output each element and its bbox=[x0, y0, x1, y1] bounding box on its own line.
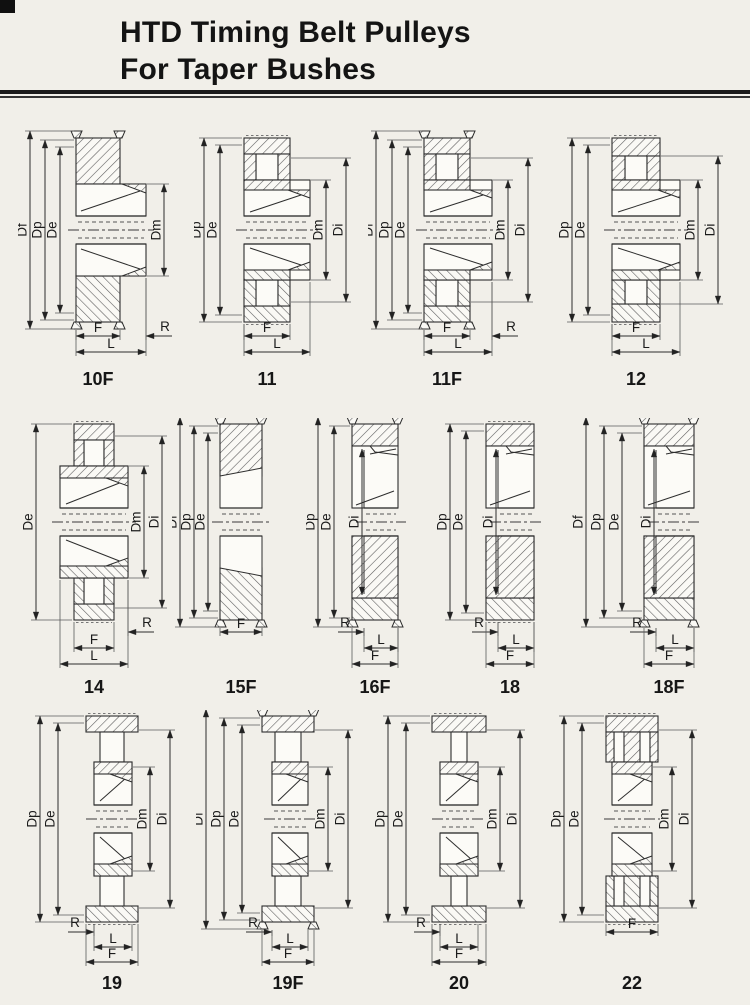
svg-text:De: De bbox=[607, 513, 622, 530]
figure-caption-14: 14 bbox=[16, 677, 172, 698]
svg-text:R: R bbox=[474, 615, 484, 630]
svg-text:Dp: Dp bbox=[373, 810, 388, 827]
svg-text:Dp: Dp bbox=[557, 221, 572, 238]
pulley-drawing-22: DpDeDmDiF bbox=[550, 710, 718, 971]
svg-text:L: L bbox=[642, 336, 650, 351]
pulley-drawing-18F: DfDpDeDiRLF bbox=[572, 418, 750, 675]
svg-text:Dm: Dm bbox=[129, 512, 144, 533]
figure-caption-18: 18 bbox=[436, 677, 584, 698]
svg-text:Di: Di bbox=[639, 516, 654, 529]
svg-text:L: L bbox=[512, 632, 520, 647]
svg-text:Df: Df bbox=[18, 223, 30, 237]
svg-text:Dm: Dm bbox=[311, 220, 326, 241]
figure-18F: DfDpDeDiRLF 18F bbox=[572, 418, 750, 698]
svg-text:De: De bbox=[567, 810, 582, 827]
svg-text:L: L bbox=[671, 632, 679, 647]
svg-text:Di: Di bbox=[677, 813, 692, 826]
svg-text:F: F bbox=[90, 632, 98, 647]
svg-text:F: F bbox=[506, 648, 514, 663]
pulley-cross-section: DpDeDmDiFL bbox=[194, 130, 364, 362]
title-rule bbox=[0, 90, 750, 98]
svg-text:Dm: Dm bbox=[657, 809, 672, 830]
svg-text:L: L bbox=[273, 336, 281, 351]
svg-text:R: R bbox=[70, 915, 80, 930]
svg-text:F: F bbox=[455, 946, 463, 961]
svg-text:Dp: Dp bbox=[209, 810, 224, 827]
svg-text:F: F bbox=[263, 320, 271, 335]
figure-caption-11: 11 bbox=[194, 369, 340, 390]
figure-caption-19F: 19F bbox=[196, 973, 380, 994]
svg-text:Dm: Dm bbox=[313, 809, 328, 830]
pulley-cross-section: DfDpDeDmDiRLF bbox=[196, 710, 366, 966]
svg-text:F: F bbox=[371, 648, 379, 663]
svg-text:Di: Di bbox=[481, 516, 496, 529]
catalog-page: HTD Timing Belt Pulleys For Taper Bushes… bbox=[0, 0, 750, 1005]
pulley-drawing-19: DpDeDmDiRLF bbox=[24, 710, 200, 971]
pulley-cross-section: DfDpDeDiRLF bbox=[572, 418, 744, 670]
svg-text:F: F bbox=[284, 946, 292, 961]
svg-text:L: L bbox=[107, 336, 115, 351]
figure-14: DeDmDiRFL 14 bbox=[16, 418, 174, 698]
svg-text:De: De bbox=[391, 810, 406, 827]
figure-20: DpDeDmDiRLF 20 bbox=[372, 710, 546, 994]
svg-text:Dp: Dp bbox=[550, 810, 564, 827]
figure-caption-11F: 11F bbox=[368, 369, 526, 390]
figure-caption-22: 22 bbox=[550, 973, 714, 994]
svg-text:Di: Di bbox=[347, 516, 362, 529]
pulley-cross-section: DpDeDiRLF bbox=[436, 418, 566, 670]
pulley-drawing-12: DpDeDmDiFL bbox=[552, 130, 742, 367]
pulley-drawing-16F: DpDeDiRLF bbox=[306, 418, 444, 675]
page-title-line1: HTD Timing Belt Pulleys bbox=[120, 16, 471, 49]
figure-16F: DpDeDiRLF 16F bbox=[306, 418, 444, 698]
svg-text:R: R bbox=[632, 615, 642, 630]
svg-text:F: F bbox=[94, 320, 102, 335]
figure-caption-10F: 10F bbox=[18, 369, 178, 390]
pulley-cross-section: DpDeDmDiFL bbox=[552, 130, 742, 362]
svg-text:Di: Di bbox=[505, 813, 520, 826]
svg-text:L: L bbox=[454, 336, 462, 351]
svg-text:Df: Df bbox=[196, 812, 206, 826]
page-title-line2: For Taper Bushes bbox=[120, 53, 376, 86]
svg-text:Dm: Dm bbox=[493, 220, 508, 241]
svg-text:De: De bbox=[227, 810, 242, 827]
pulley-drawing-18: DpDeDiRLF bbox=[436, 418, 584, 675]
svg-text:Dp: Dp bbox=[30, 221, 45, 238]
svg-text:L: L bbox=[455, 931, 463, 946]
figure-caption-18F: 18F bbox=[572, 677, 750, 698]
pulley-cross-section: DeDmDiRFL bbox=[16, 418, 174, 670]
figure-12: DpDeDmDiFL 12 bbox=[552, 130, 742, 390]
svg-text:Dp: Dp bbox=[436, 513, 450, 530]
svg-text:F: F bbox=[443, 320, 451, 335]
svg-text:Dp: Dp bbox=[194, 221, 204, 238]
svg-text:F: F bbox=[628, 916, 636, 931]
svg-text:F: F bbox=[108, 946, 116, 961]
figure-caption-12: 12 bbox=[552, 369, 720, 390]
figure-15F: DfDpDeF 15F bbox=[172, 418, 310, 698]
pulley-cross-section: DpDeDmDiRLF bbox=[24, 710, 186, 966]
svg-text:Di: Di bbox=[147, 516, 162, 529]
svg-text:De: De bbox=[21, 513, 36, 530]
svg-text:R: R bbox=[506, 319, 516, 334]
svg-text:De: De bbox=[451, 513, 466, 530]
figure-22: DpDeDmDiF 22 bbox=[550, 710, 718, 994]
page-title: HTD Timing Belt Pulleys For Taper Bushes bbox=[120, 14, 471, 88]
figure-10F: DfDpDeDmFRL 10F bbox=[18, 130, 190, 390]
svg-text:De: De bbox=[45, 221, 60, 238]
pulley-cross-section: DfDpDeDmFRL bbox=[18, 130, 190, 362]
figure-caption-19: 19 bbox=[24, 973, 200, 994]
figure-11: DpDeDmDiFL 11 bbox=[194, 130, 364, 390]
svg-text:De: De bbox=[205, 221, 220, 238]
svg-text:R: R bbox=[248, 915, 258, 930]
pulley-drawing-11: DpDeDmDiFL bbox=[194, 130, 364, 367]
svg-text:Dp: Dp bbox=[377, 221, 392, 238]
figure-19: DpDeDmDiRLF 19 bbox=[24, 710, 200, 994]
svg-text:Dm: Dm bbox=[149, 220, 164, 241]
pulley-drawing-10F: DfDpDeDmFRL bbox=[18, 130, 190, 367]
svg-text:Df: Df bbox=[368, 223, 376, 237]
svg-text:Df: Df bbox=[572, 515, 586, 529]
svg-text:Dm: Dm bbox=[683, 220, 698, 241]
figure-caption-15F: 15F bbox=[172, 677, 310, 698]
svg-text:L: L bbox=[109, 931, 117, 946]
svg-text:L: L bbox=[377, 632, 385, 647]
svg-text:R: R bbox=[340, 615, 350, 630]
scan-corner-mark bbox=[0, 0, 15, 13]
svg-text:Dm: Dm bbox=[135, 809, 150, 830]
svg-text:R: R bbox=[142, 615, 152, 630]
svg-text:Dp: Dp bbox=[589, 513, 604, 530]
figure-11F: DfDpDeDmDiFRL 11F bbox=[368, 130, 548, 390]
svg-text:R: R bbox=[160, 319, 170, 334]
pulley-cross-section: DpDeDmDiF bbox=[550, 710, 718, 966]
pulley-cross-section: DpDeDiRLF bbox=[306, 418, 434, 670]
svg-text:Di: Di bbox=[155, 813, 170, 826]
pulley-drawing-19F: DfDpDeDmDiRLF bbox=[196, 710, 380, 971]
svg-text:De: De bbox=[393, 221, 408, 238]
svg-text:R: R bbox=[416, 915, 426, 930]
figure-19F: DfDpDeDmDiRLF 19F bbox=[196, 710, 380, 994]
svg-text:Di: Di bbox=[333, 813, 348, 826]
svg-text:De: De bbox=[193, 513, 208, 530]
svg-text:Di: Di bbox=[703, 224, 718, 237]
pulley-drawing-14: DeDmDiRFL bbox=[16, 418, 174, 675]
svg-text:Di: Di bbox=[331, 224, 346, 237]
svg-text:De: De bbox=[43, 810, 58, 827]
pulley-cross-section: DfDpDeDmDiFRL bbox=[368, 130, 548, 362]
figure-caption-20: 20 bbox=[372, 973, 546, 994]
pulley-drawing-20: DpDeDmDiRLF bbox=[372, 710, 546, 971]
svg-text:Dm: Dm bbox=[485, 809, 500, 830]
pulley-cross-section: DfDpDeF bbox=[172, 418, 302, 670]
svg-text:F: F bbox=[237, 616, 245, 631]
title-rule-thin bbox=[0, 96, 750, 98]
svg-text:Dp: Dp bbox=[306, 513, 318, 530]
pulley-drawing-11F: DfDpDeDmDiFRL bbox=[368, 130, 548, 367]
svg-text:L: L bbox=[286, 931, 294, 946]
svg-text:L: L bbox=[90, 648, 98, 663]
figure-caption-16F: 16F bbox=[306, 677, 444, 698]
pulley-drawing-15F: DfDpDeF bbox=[172, 418, 310, 675]
svg-text:F: F bbox=[665, 648, 673, 663]
svg-text:Dp: Dp bbox=[179, 513, 194, 530]
svg-text:Di: Di bbox=[513, 224, 528, 237]
svg-text:Dp: Dp bbox=[25, 810, 40, 827]
figure-18: DpDeDiRLF 18 bbox=[436, 418, 584, 698]
svg-text:F: F bbox=[632, 320, 640, 335]
pulley-cross-section: DpDeDmDiRLF bbox=[372, 710, 544, 966]
svg-text:De: De bbox=[319, 513, 334, 530]
svg-text:De: De bbox=[573, 221, 588, 238]
